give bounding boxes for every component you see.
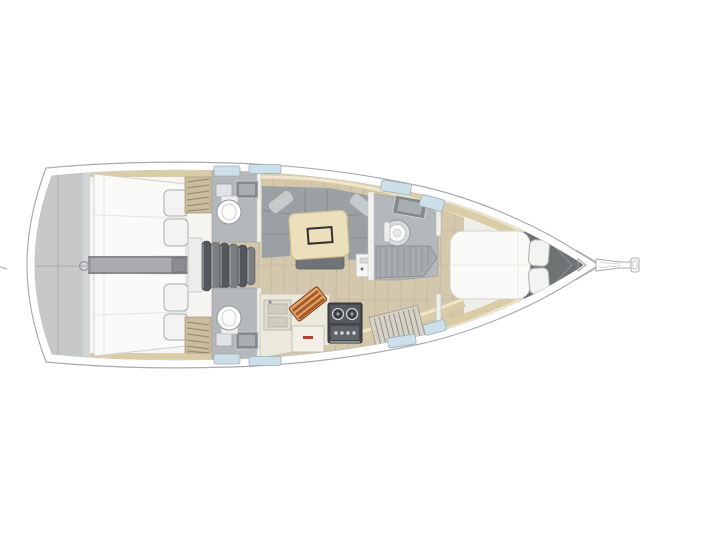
- toilet: [217, 196, 241, 224]
- pillow: [164, 284, 188, 311]
- companionway-steps: [188, 238, 255, 292]
- yacht-layout-page: [0, 0, 717, 537]
- window: [249, 165, 281, 174]
- bowsprit-tube: [596, 259, 634, 271]
- sink: [236, 181, 258, 198]
- galley-sink: [264, 300, 291, 330]
- pillow: [164, 219, 188, 246]
- window: [249, 357, 281, 366]
- head-aft-starboard: [212, 288, 261, 364]
- oven-front: [292, 326, 324, 352]
- anchor-roller: [631, 258, 639, 272]
- pillow: [528, 239, 550, 266]
- boat-plan: [0, 0, 717, 537]
- window: [214, 354, 240, 364]
- head-aft-port: [212, 166, 261, 242]
- locker-louvers: [185, 317, 211, 353]
- bowsprit: [576, 250, 639, 280]
- stove: [328, 303, 362, 343]
- locker-louvers: [185, 177, 211, 213]
- sink: [236, 332, 258, 349]
- pillow: [164, 314, 188, 340]
- toilet: [217, 306, 241, 334]
- toilet: [384, 220, 410, 246]
- salon-table: [288, 210, 349, 260]
- mirror: [216, 333, 232, 346]
- window: [214, 166, 240, 176]
- mirror: [216, 184, 232, 197]
- left-edge-mark: [0, 267, 7, 269]
- pillow: [164, 190, 188, 216]
